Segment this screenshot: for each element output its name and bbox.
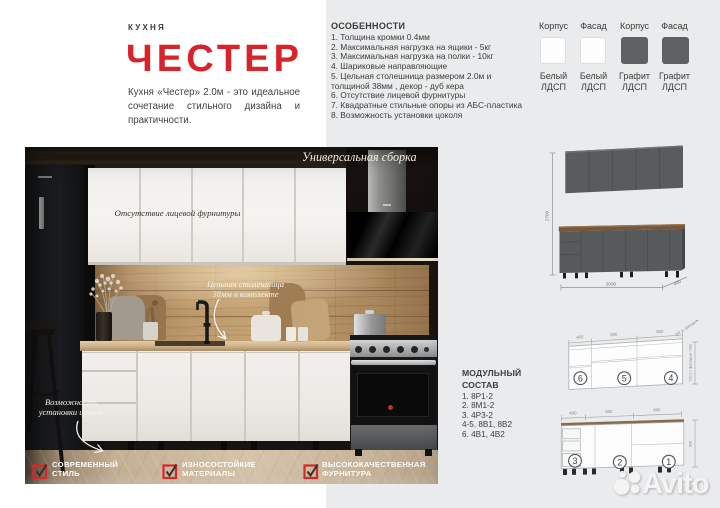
svg-text:400: 400 (576, 334, 584, 340)
svg-text:2000: 2000 (606, 282, 617, 287)
svg-text:6: 6 (578, 373, 583, 383)
svg-text:2700: 2700 (545, 210, 550, 221)
svg-text:292 (с фасадом 308): 292 (с фасадом 308) (674, 320, 707, 337)
svg-text:4: 4 (668, 373, 673, 383)
svg-text:800: 800 (605, 409, 613, 414)
svg-text:800: 800 (610, 332, 618, 338)
svg-text:5: 5 (622, 373, 627, 383)
svg-text:800: 800 (653, 407, 661, 412)
svg-text:800: 800 (656, 329, 664, 335)
svg-text:720 ( с фасадом 738): 720 ( с фасадом 738) (689, 344, 693, 382)
svg-text:808: 808 (689, 441, 693, 447)
svg-text:400: 400 (569, 410, 577, 415)
svg-text:Avito: Avito (642, 468, 709, 500)
svg-text:3: 3 (572, 456, 577, 466)
